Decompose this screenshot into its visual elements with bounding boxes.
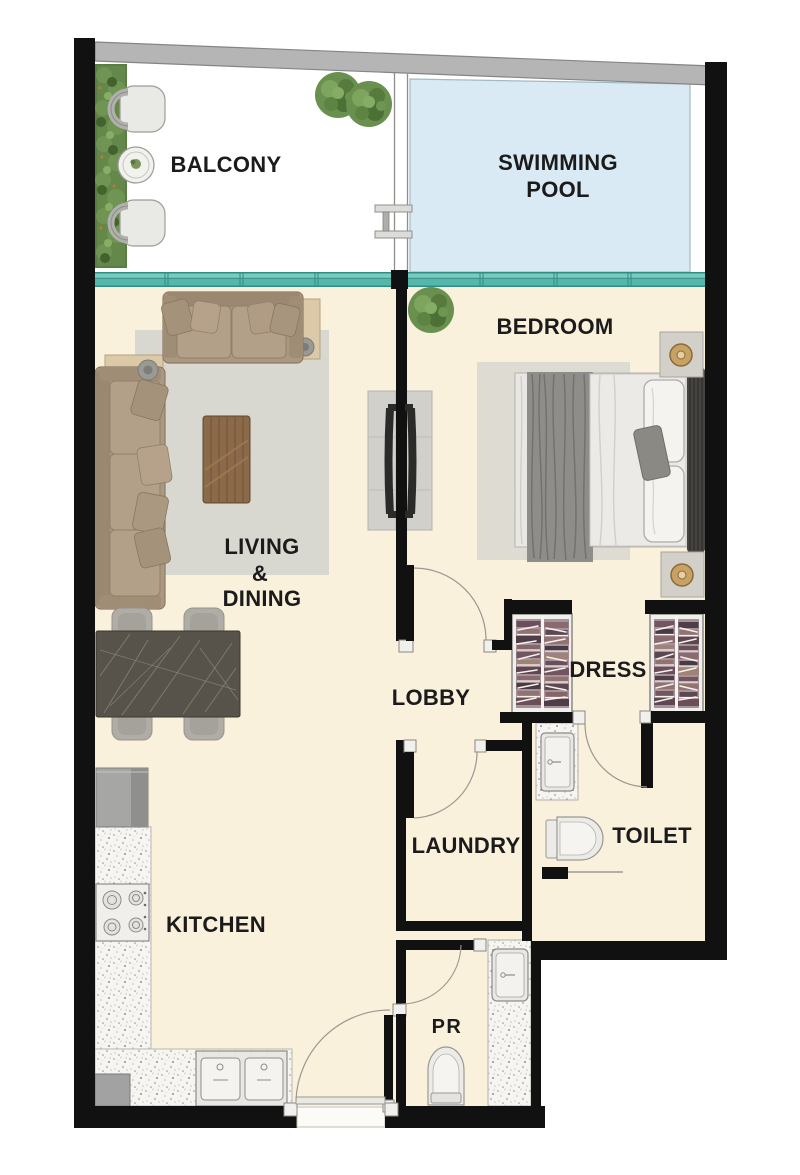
- svg-text:LOBBY: LOBBY: [392, 685, 471, 710]
- svg-text:LAUNDRY: LAUNDRY: [412, 833, 521, 858]
- svg-text:DINING: DINING: [223, 586, 302, 611]
- svg-text:KITCHEN: KITCHEN: [166, 912, 266, 937]
- svg-text:DRESS: DRESS: [569, 657, 646, 682]
- svg-text:PR: PR: [432, 1016, 463, 1038]
- svg-text:LIVING: LIVING: [224, 534, 299, 559]
- svg-text:SWIMMING: SWIMMING: [498, 150, 618, 175]
- svg-text:POOL: POOL: [526, 177, 590, 202]
- svg-text:&: &: [252, 561, 268, 586]
- svg-text:BEDROOM: BEDROOM: [497, 314, 614, 339]
- svg-text:TOILET: TOILET: [612, 823, 692, 848]
- svg-text:BALCONY: BALCONY: [171, 152, 282, 177]
